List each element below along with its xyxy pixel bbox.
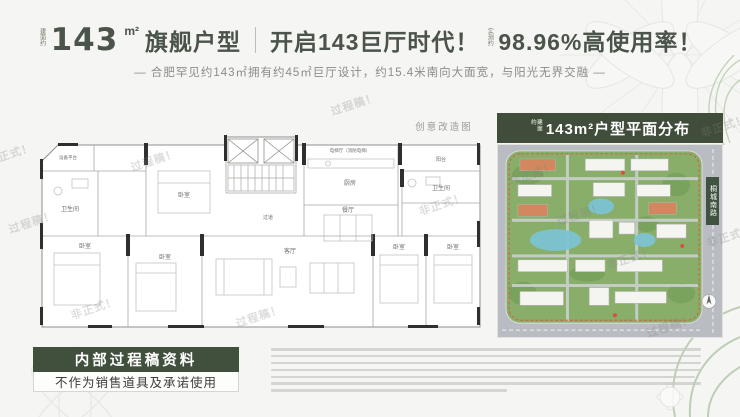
sitemap-title-prefix: 建面约 bbox=[530, 119, 542, 137]
room-label-bedroom-5: 卧室 bbox=[447, 243, 459, 251]
sitemap-drawing bbox=[498, 145, 722, 337]
floorplan-drawing: 设备平台 卫生间 卧室 电梯厅（消防电梯） 厨房 餐厅 过道 卫生间 阳台 客厅… bbox=[28, 131, 490, 342]
area-unit: m² bbox=[124, 24, 139, 38]
sitemap-title: 143m²户型平面分布 bbox=[546, 118, 690, 139]
room-label-bedroom-3: 卧室 bbox=[159, 253, 171, 261]
room-label-kitchen: 厨房 bbox=[344, 179, 356, 187]
road-label: 桐城南路 bbox=[706, 177, 719, 225]
rate-text: 98.96%高使用率！ bbox=[498, 23, 702, 57]
room-label-bathroom-1: 卫生间 bbox=[61, 205, 79, 213]
compass-icon bbox=[702, 294, 716, 308]
badge-title: 内部过程稿资料 bbox=[33, 347, 239, 372]
fine-print-line bbox=[271, 382, 701, 385]
fine-print-line bbox=[271, 389, 507, 392]
fine-print-line bbox=[271, 348, 701, 351]
page-title: 建面约 143 m² 旗舰户型 开启143巨厅时代！ 实测约 98.96%高使用… bbox=[0, 22, 740, 58]
room-label-corridor: 过道 bbox=[263, 214, 273, 221]
process-draft-badge: 内部过程稿资料 不作为销售道具及承诺使用 bbox=[33, 347, 239, 392]
disclaimer-fine-print bbox=[271, 348, 701, 396]
area-prefix: 建面约 bbox=[38, 28, 45, 52]
room-label-living: 客厅 bbox=[284, 247, 296, 255]
subtitle: — 合肥罕见约143㎡拥有约45㎡巨厅设计，约15.4米南向大面宽，与阳光无界交… bbox=[0, 64, 740, 80]
floorplan: 设备平台 卫生间 卧室 电梯厅（消防电梯） 厨房 餐厅 过道 卫生间 阳台 客厅… bbox=[28, 131, 490, 342]
badge-subtitle: 不作为销售道具及承诺使用 bbox=[33, 372, 239, 392]
watermark: 过程稿！ bbox=[329, 89, 380, 119]
fine-print-line bbox=[271, 355, 701, 358]
outer-wall bbox=[42, 137, 480, 327]
title-main: 旗舰户型 bbox=[145, 23, 241, 57]
room-label-bathroom-2: 卫生间 bbox=[432, 184, 450, 192]
fine-print-line bbox=[271, 369, 701, 372]
area-value: 143 bbox=[51, 22, 119, 58]
rate-prefix: 实测约 bbox=[485, 28, 492, 52]
room-label-bedroom-2: 卧室 bbox=[79, 242, 91, 250]
room-label-bedroom-4: 卧室 bbox=[393, 243, 405, 251]
sitemap-title-bar: 建面约 143m²户型平面分布 bbox=[497, 113, 723, 143]
room-label-dining: 餐厅 bbox=[342, 206, 354, 214]
room-label-bedroom-1: 卧室 bbox=[178, 191, 190, 199]
title-slogan: 开启143巨厅时代！ bbox=[270, 23, 479, 57]
page: 建面约 143 m² 旗舰户型 开启143巨厅时代！ 实测约 98.96%高使用… bbox=[0, 0, 740, 417]
room-label-equipment: 设备平台 bbox=[59, 154, 77, 161]
room-label-balcony: 阳台 bbox=[436, 156, 446, 163]
room-label-elevator: 电梯厅（消防电梯） bbox=[330, 147, 371, 154]
title-divider bbox=[255, 27, 256, 53]
fine-print-line bbox=[271, 362, 701, 365]
fine-print-line bbox=[271, 376, 695, 379]
sitemap: 桐城南路 bbox=[497, 144, 723, 338]
